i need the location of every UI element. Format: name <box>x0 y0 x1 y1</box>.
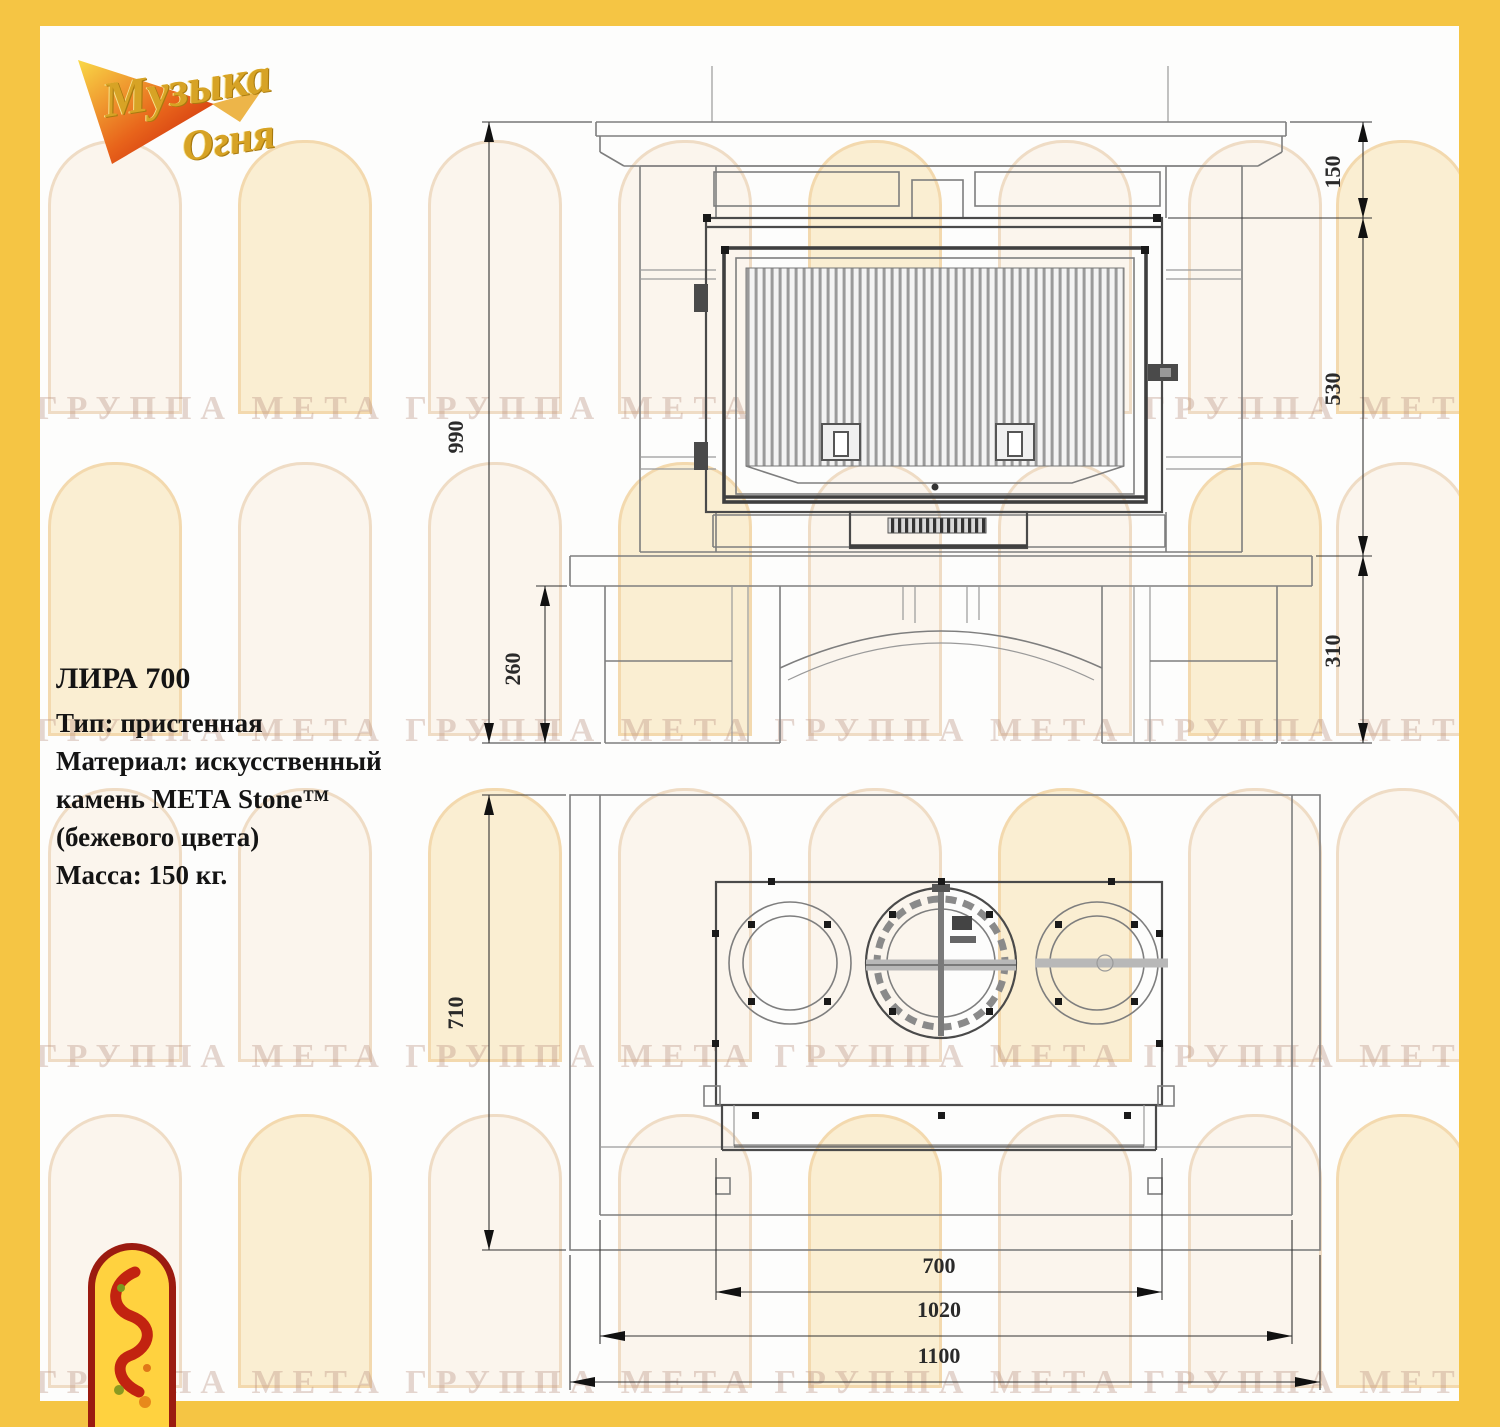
door-hinge-top <box>694 284 708 312</box>
page: { "page": { "border_color": "#f5c544", "… <box>0 0 1500 1427</box>
dim-label-700: 700 <box>923 1253 956 1278</box>
dim-label-150: 150 <box>1320 156 1345 189</box>
dim-label-1100: 1100 <box>918 1343 961 1368</box>
brand-logo: Музыка Огня <box>62 30 332 200</box>
spec-line-5: Масса: 150 кг. <box>56 856 382 894</box>
dim-label-710: 710 <box>443 997 468 1030</box>
dim-right-chain: 150 530 310 <box>1168 122 1372 743</box>
dim-990: 990 <box>443 122 601 743</box>
flame-figure-icon <box>95 1250 169 1422</box>
dim-label-1020: 1020 <box>917 1297 961 1322</box>
door-hinge-bottom <box>694 442 708 470</box>
dim-label-310: 310 <box>1320 635 1345 668</box>
product-info: ЛИРА 700 Тип: пристенная Материал: искус… <box>56 662 382 894</box>
flue-circle-center <box>866 884 1016 1038</box>
dim-710: 710 <box>443 795 566 1250</box>
page-border-right <box>1459 0 1500 1427</box>
page-border-bottom <box>0 1401 1500 1427</box>
dim-label-260: 260 <box>500 653 525 686</box>
page-border-left <box>0 0 40 1427</box>
vent-circle-left <box>729 902 851 1024</box>
dim-260: 260 <box>500 586 567 743</box>
dim-700: 700 <box>716 1158 1162 1300</box>
page-border-top <box>0 0 1500 26</box>
front-view: 990 260 150 530 310 <box>443 66 1372 743</box>
vent-circle-right <box>1035 902 1168 1024</box>
product-title: ЛИРА 700 <box>56 662 382 696</box>
dim-1020: 1020 <box>600 1220 1292 1344</box>
firebox-door <box>694 214 1178 548</box>
dim-label-990: 990 <box>443 421 468 454</box>
spec-line-4: (бежевого цвета) <box>56 818 382 856</box>
spec-line-3: камень МЕТА Stone™ <box>56 780 382 818</box>
spec-line-2: Материал: искусственный <box>56 742 382 780</box>
plan-view: 710 700 1020 1100 <box>443 795 1320 1390</box>
flame-arch-logo <box>88 1243 176 1427</box>
pedestal <box>605 586 1277 743</box>
spec-line-1: Тип: пристенная <box>56 704 382 742</box>
dim-label-530: 530 <box>1320 373 1345 406</box>
